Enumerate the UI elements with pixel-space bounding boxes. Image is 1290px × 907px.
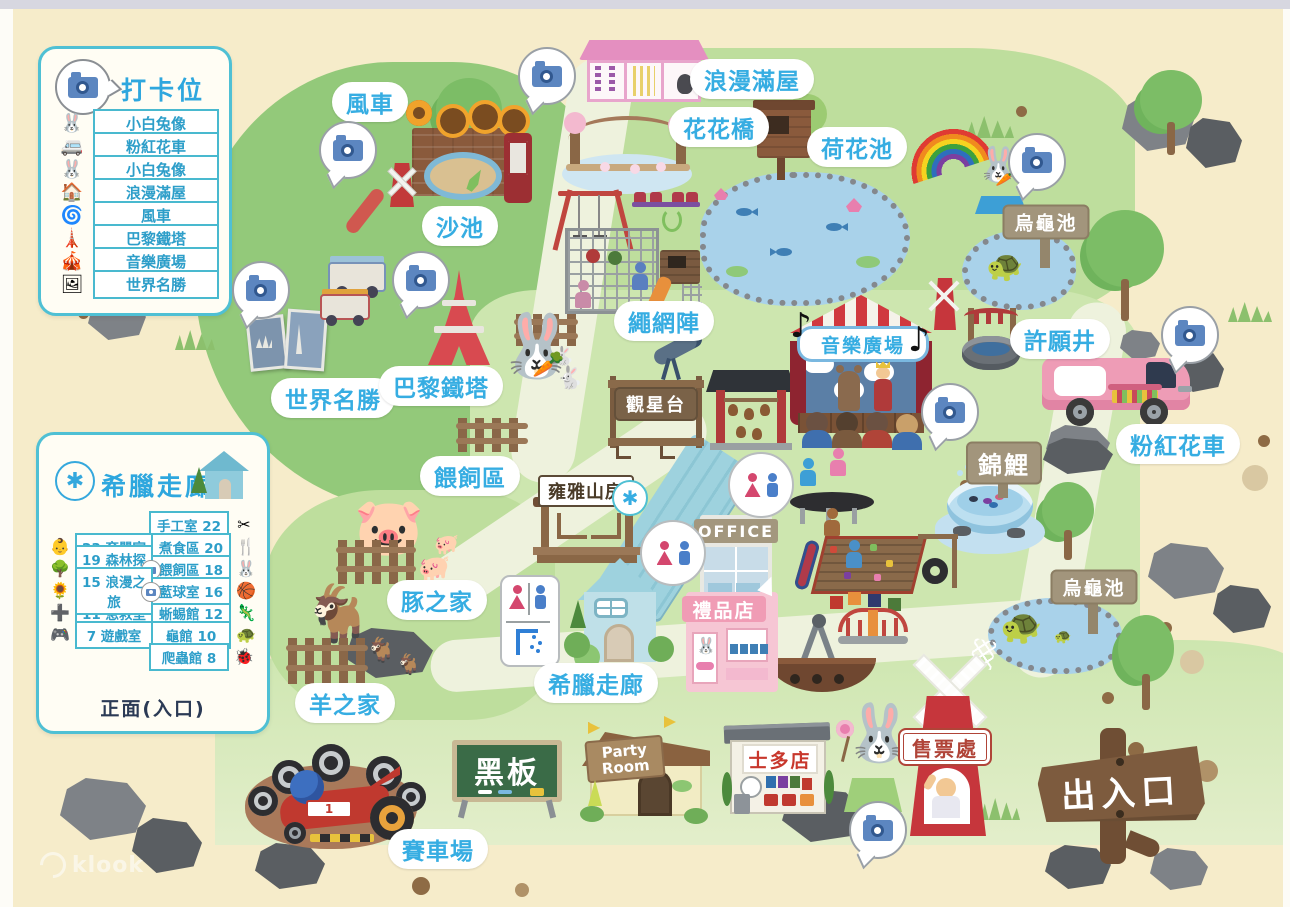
rabbit-icon: 🐰 [231,561,261,577]
audience [800,412,930,454]
music-note-icon: ♪ [908,320,930,360]
climbing-kid [575,280,591,308]
baby-care-icon: 👶 [45,539,75,555]
driver-helmet [290,770,324,804]
left-edge [0,9,13,907]
climbing-kid [824,508,840,536]
party-room-label: Party Room [599,740,652,777]
blackboard-label: 黑板 [452,748,562,792]
asterisk-icon: ✱ [55,461,95,501]
soil-dot [412,877,430,895]
piglet: 🐖 [418,556,450,582]
pink-van-icon: 🚐 [51,138,93,156]
camera-spot-icon [232,261,290,319]
romantic-trip-icon: 🌻 [45,583,75,599]
greek-house-icon [191,447,257,505]
rabbit-statue-icon: 🐰 [51,115,93,133]
party-room-house: Party Room [582,724,710,820]
rabbit-statue-icon: 🐰 [51,161,93,179]
sign-turtle-pond-upper: 烏龜池 [1002,205,1089,240]
beetle-icon: 🐞 [229,649,259,665]
camera-spot-icon [1161,306,1219,364]
tree [1042,482,1094,562]
sign-text: 烏龜池 [1062,578,1125,600]
soil-dot [1102,692,1114,704]
sand-pool [424,152,502,200]
performer-king [874,379,892,411]
toilet-bubble [728,452,794,518]
label-windmill: 風車 [332,82,408,122]
window-chrome-strip [0,0,1290,9]
seesaw-spinner [632,188,702,228]
label-romantic-house: 浪漫滿屋 [690,59,814,99]
store-sign: 士多店 [742,744,818,774]
ticket-office-sign: 售票處 [898,728,992,766]
spare-wheel [248,786,278,816]
music-note-icon: ♪ [790,306,812,346]
performer-bear [838,371,860,411]
forest-adventure-icon: 🌳 [45,561,75,577]
checkin-legend: 打卡位置 🐰小白兔像 🚐粉紅花車 🐰小白兔像 🏠浪漫滿屋 🌀風車 🗼巴黎鐵塔 🎪… [38,46,232,316]
music-stage-icon: 🎪 [51,253,93,271]
soil-dot [1258,435,1270,447]
shower-icon [516,629,538,655]
tree [1086,210,1164,320]
fence [338,540,414,584]
climbing-kid [632,262,648,290]
gift-shop-label: 禮品店 [692,596,755,623]
label-race-track: 賽車場 [388,829,488,869]
jumping-kid [830,448,846,476]
label-goat-home: 羊之家 [295,683,395,723]
carrot: 🥕 [532,352,564,378]
label-lotus-pond: 荷花池 [807,127,907,167]
sign-text: 觀星台 [626,395,686,416]
label-wishing-well: 許願井 [1010,319,1110,359]
room-cell: 7 遊戲室 [75,621,153,649]
train-cart-2 [320,294,370,320]
store-label: 士多店 [748,746,811,773]
romantic-house-illustration [585,40,703,102]
tree [1140,70,1202,156]
label-rope-net: 繩網陣 [614,301,714,341]
world-sights-icon: 🖼 [51,276,93,294]
sunflower-roof [406,100,524,132]
rock [1213,585,1271,633]
goat: 🐐 [302,586,374,644]
rock [60,778,146,840]
sign-text: 錦鯉 [978,452,1030,480]
camera-spot-icon [921,383,979,441]
soil-dot [515,883,529,897]
klook-watermark: klook [40,852,144,878]
room-cell: 爬蟲館 8 [149,643,229,671]
exit-label: 出入口 [1037,762,1205,820]
asterisk-marker: ✱ [612,480,648,516]
climbing-kid [846,540,862,568]
camera-spot-icon [392,251,450,309]
greek-corridor-legend: ✱ 希臘走廊 手工室 22 ✂ 👶 23 育嬰室 煮食區 20 🍴 [36,432,270,734]
turtle-pond-lower: 🐢 🐢 [988,598,1122,674]
music-plaza-label: 音樂廣場 [821,331,905,358]
room-cell: 藍球室 16 [151,577,231,605]
sign-text: 烏龜池 [1014,213,1077,235]
klook-logo-icon [35,847,72,884]
cooking-icon: 🍴 [231,539,261,555]
rock [1148,543,1224,599]
grass-tuft [1228,302,1272,322]
label-flower-bridge: 花花橋 [669,107,769,147]
first-aid-icon: ➕ [45,605,75,621]
label-pink-van: 粉紅花車 [1116,424,1240,464]
office-label: OFFICE [698,522,774,541]
list-item: 🖼世界名勝 [51,272,219,297]
sand-dot [1180,650,1204,674]
camera-mini-icon [141,582,161,602]
greek-legend-footer: 正面(入口) [39,694,267,721]
pirate-boat-swing [768,618,878,698]
rock [255,843,325,889]
label-sand-pit: 沙池 [422,206,498,246]
sign-koi: 錦鯉 [966,442,1042,485]
romantic-house-icon: 🏠 [51,184,93,202]
turtle-pond-upper: 🐢 [962,230,1076,310]
fence [458,418,526,452]
checkin-list: 🐰小白兔像 🚐粉紅花車 🐰小白兔像 🏠浪漫滿屋 🌀風車 🗼巴黎鐵塔 🎪音樂廣場 … [51,111,219,297]
party-room-sign: Party Room [584,735,665,784]
greek-room-table: 手工室 22 ✂ 👶 23 育嬰室 煮食區 20 🍴 🌳 19 森林探險 餵飼區… [45,513,261,669]
ticket-office-label: 售票處 [912,733,978,762]
gift-shop-building: 禮品店 🐰 [686,592,778,692]
camera-spot-icon [319,121,377,179]
label-greek-corridor: 希臘走廊 [534,663,658,703]
phone-booth [504,133,532,203]
toilet-bubble [640,520,706,586]
label-feeding-area: 餵飼區 [420,456,520,496]
right-edge [1283,9,1290,907]
sign-turtle-pond-lower: 烏龜池 [1050,570,1137,605]
jumping-kid [800,458,816,486]
tree [1118,615,1174,710]
front-wheel [284,822,306,844]
store-building: 士多店 [726,720,830,820]
goat-kid: 🐐 [396,654,421,674]
bell-gate [710,370,792,450]
label-eiffel-tower: 巴黎鐵塔 [379,366,503,406]
piglet: 🐖 [434,534,459,554]
lizard-icon: 🦎 [231,605,261,621]
camera-spot-icon [849,801,907,859]
basketball-icon: 🏀 [231,583,261,599]
park-map: 🐰 🥕 🐢 烏龜池 [0,0,1290,907]
game-room-icon: 🎮 [45,627,75,643]
soil-dot [1016,106,1027,117]
scissors-icon: ✂ [229,517,259,533]
eiffel-tower-icon: 🗼 [51,230,93,248]
world-sights-pictures [248,310,322,372]
toilet-shower-sign [500,575,560,667]
windmill-icon: 🌀 [51,207,93,225]
fence [288,638,366,684]
tire-icon [922,558,948,584]
chalkboard: 黑板 [452,740,562,818]
climbing-wall [800,532,960,602]
goat-kid: 🐐 [366,638,396,662]
turtle-icon: 🐢 [231,627,261,643]
sign-stargazing: 觀星台 [614,387,698,421]
label-world-sights: 世界名勝 [271,378,395,418]
camera-bubble-icon [55,59,111,115]
exit-sign: 出入口 [1038,728,1208,868]
train-cart-1 [328,262,386,292]
camera-spot-icon [1008,133,1066,191]
windmill-illustration [378,145,426,207]
label-pig-home: 豚之家 [387,580,487,620]
camera-spot-icon [518,47,576,105]
sand-dot [1242,465,1268,491]
